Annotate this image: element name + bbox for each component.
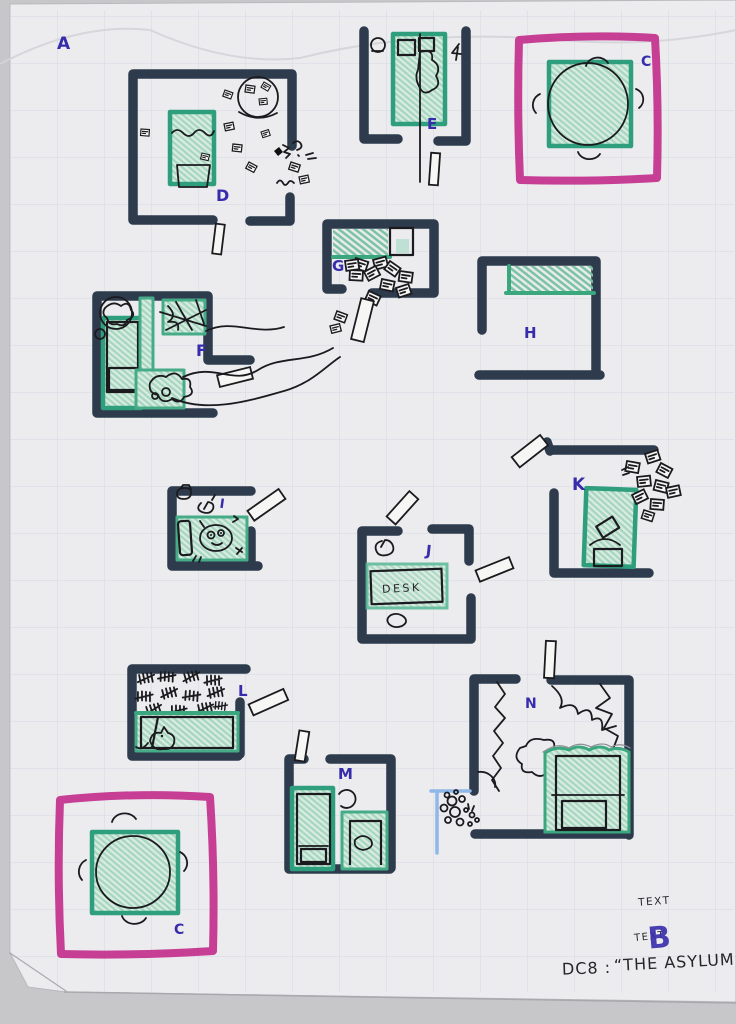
room-label-e: E [427, 115, 437, 133]
room-label-d: D [216, 186, 229, 205]
bed-room-m-left [292, 788, 333, 869]
room-label-h: H [524, 324, 537, 342]
room-label-k: K [572, 475, 586, 495]
room-label-a: A [57, 34, 71, 54]
room-label-c-top: C [641, 54, 651, 70]
note-text-top: TEXT [637, 895, 671, 909]
bed-room-d [170, 112, 214, 187]
padded-floor-bottom [92, 832, 178, 913]
door-room-n [544, 641, 556, 678]
dungeon-map-svg: A [0, 0, 736, 1024]
map-title-code: DC8 : [562, 958, 612, 979]
note-letter-b: B [646, 920, 672, 957]
room-label-n: N [525, 696, 537, 712]
room-label-f: F [196, 341, 207, 360]
room-label-l: L [238, 682, 248, 700]
room-label-m: M [338, 765, 353, 783]
room-label-g: G [332, 257, 344, 275]
bed-room-m-right [342, 812, 387, 869]
bed-room-n [543, 744, 630, 832]
bed-room-k [584, 488, 637, 567]
bed-room-g [333, 229, 388, 255]
room-label-c-bottom: C [174, 922, 184, 938]
door-room-e [429, 153, 440, 186]
platform-room-h [509, 266, 593, 292]
desk-label: DESK [382, 581, 422, 596]
scanned-page: A [0, 0, 736, 1024]
